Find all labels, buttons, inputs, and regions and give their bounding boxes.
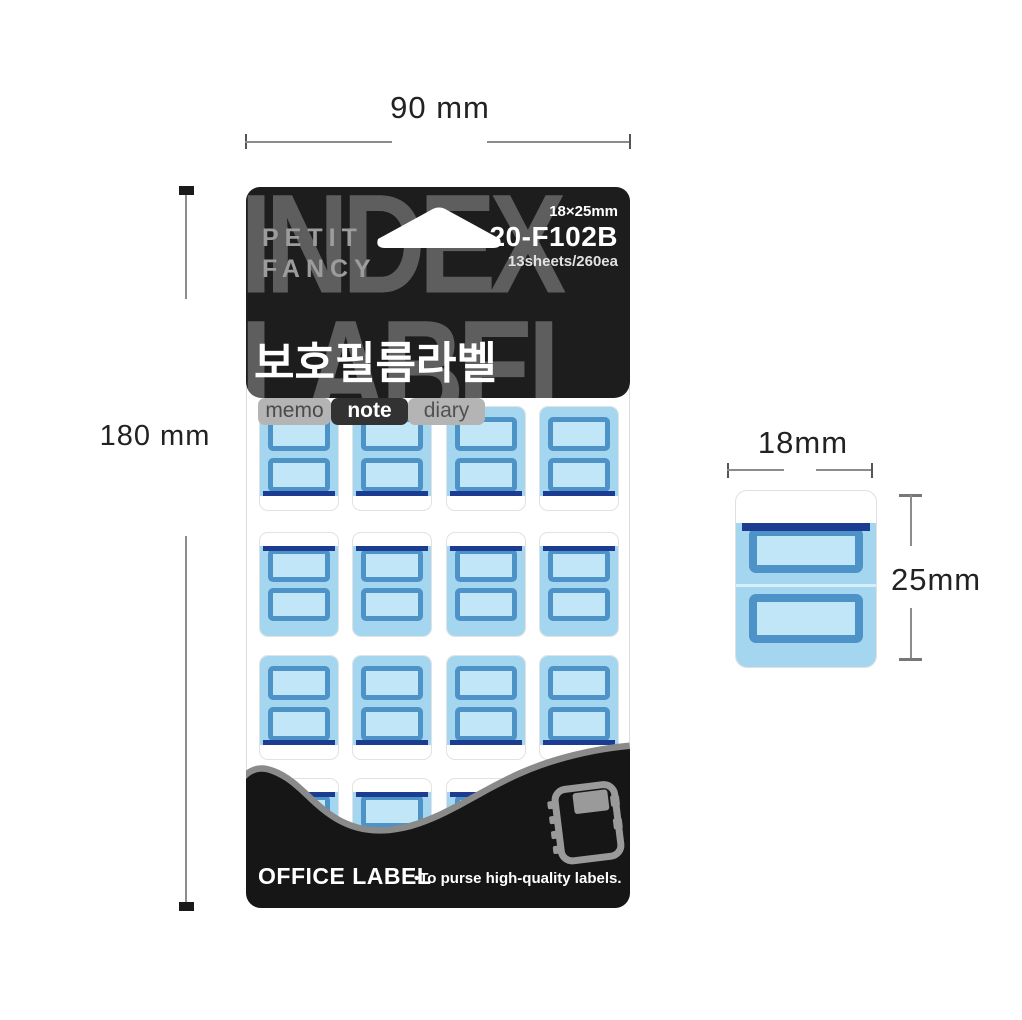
tab-height-line-top — [910, 495, 912, 546]
label-package: memo note diary INDEX LABEL PETIT FANCY … — [246, 187, 630, 908]
write-field — [361, 458, 423, 492]
navy-edge — [356, 491, 428, 496]
navy-edge — [543, 546, 615, 551]
label-seam — [736, 584, 876, 587]
tab-note: note — [331, 398, 408, 425]
write-field — [361, 666, 423, 700]
write-field — [361, 549, 423, 582]
write-field — [548, 666, 610, 700]
package-header: INDEX LABEL PETIT FANCY 18×25mm 20-F102B… — [246, 187, 630, 398]
label-sticker — [539, 406, 619, 511]
tab-height-cap-bottom — [899, 658, 922, 661]
navy-edge — [543, 491, 615, 496]
navy-edge — [450, 546, 522, 551]
height-dimension-line-top — [185, 195, 187, 299]
write-field — [268, 588, 330, 621]
product-spec-image: 90 mm 180 mm memo note diary INDEX LABEL… — [0, 0, 1022, 1020]
write-field — [455, 666, 517, 700]
label-sticker — [446, 532, 526, 637]
width-dimension-line-right — [487, 141, 631, 143]
write-field — [548, 417, 610, 451]
navy-edge — [263, 546, 335, 551]
write-field — [455, 549, 517, 582]
brand-logo: PETIT FANCY — [262, 223, 377, 285]
write-field — [455, 458, 517, 492]
write-field — [455, 588, 517, 621]
enlarged-label — [735, 490, 877, 668]
height-dimension-cap-top — [179, 186, 194, 195]
width-dimension-label: 90 mm — [360, 90, 520, 126]
label-sticker — [259, 532, 339, 637]
brand-line1: PETIT — [262, 223, 377, 254]
write-field — [548, 588, 610, 621]
label-sticker — [352, 532, 432, 637]
tab-width-label: 18mm — [723, 425, 883, 461]
width-dimension-line-left — [245, 141, 392, 143]
notebook-icon — [534, 773, 630, 873]
package-footer: OFFICE LABEL •To purse high-quality labe… — [246, 733, 630, 908]
product-title: 보호필름라벨 — [254, 327, 497, 391]
navy-edge — [742, 523, 870, 531]
navy-edge — [450, 491, 522, 496]
write-field — [361, 588, 423, 621]
height-dimension-cap-bottom — [179, 902, 194, 911]
spec-model-code: 20-F102B — [489, 221, 618, 253]
tab-memo: memo — [258, 398, 331, 425]
hang-hole-icon — [374, 203, 504, 249]
label-sticker — [539, 532, 619, 637]
brand-line2: FANCY — [262, 254, 377, 285]
write-field — [268, 458, 330, 492]
navy-edge — [356, 546, 428, 551]
tab-width-line-left — [727, 469, 784, 471]
write-field — [268, 666, 330, 700]
footer-brand: OFFICE LABEL — [258, 863, 431, 890]
spec-size: 18×25mm — [489, 203, 618, 220]
navy-edge — [263, 491, 335, 496]
write-field — [548, 458, 610, 492]
height-dimension-label: 180 mm — [95, 420, 215, 453]
tab-diary: diary — [408, 398, 485, 425]
width-dimension-tick-right — [629, 134, 631, 149]
spec-block: 18×25mm 20-F102B 13sheets/260ea — [489, 203, 618, 270]
write-field — [268, 549, 330, 582]
tab-height-line-bottom — [910, 608, 912, 659]
write-field — [548, 549, 610, 582]
write-field — [749, 594, 863, 643]
height-dimension-line-bottom — [185, 536, 187, 902]
tab-width-tick-right — [871, 463, 873, 478]
write-field — [749, 528, 863, 573]
tab-height-label: 25mm — [891, 562, 981, 598]
tab-width-line-right — [816, 469, 873, 471]
spec-count: 13sheets/260ea — [489, 253, 618, 270]
